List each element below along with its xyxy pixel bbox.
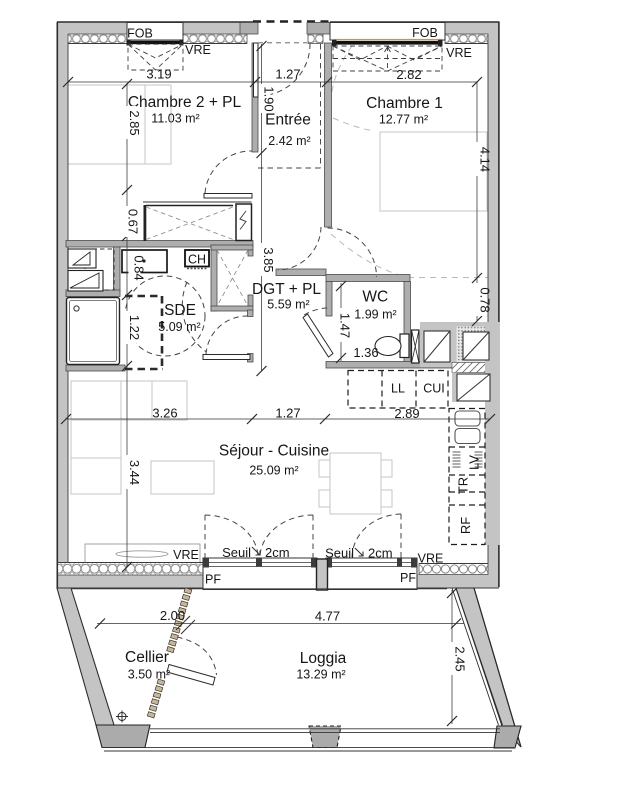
svg-text:3.85: 3.85 [261, 247, 276, 272]
svg-text:Cellier: Cellier [125, 649, 169, 666]
svg-text:2.89: 2.89 [394, 406, 419, 421]
svg-text:4.14: 4.14 [478, 147, 493, 172]
svg-text:FOB: FOB [127, 27, 153, 41]
svg-text:1.90: 1.90 [262, 86, 277, 111]
svg-text:Chambre 1: Chambre 1 [366, 95, 443, 112]
svg-text:Seuil: Seuil [325, 546, 354, 561]
svg-text:Loggia: Loggia [300, 650, 347, 667]
svg-text:Entrée: Entrée [265, 112, 311, 129]
svg-text:SDE: SDE [164, 302, 196, 319]
svg-text:PF: PF [205, 573, 221, 587]
svg-text:3.26: 3.26 [152, 406, 177, 421]
svg-text:PF: PF [400, 571, 416, 585]
svg-text:TR: TR [456, 477, 471, 494]
svg-text:Chambre 2 + PL: Chambre 2 + PL [128, 94, 242, 111]
svg-text:13.29 m²: 13.29 m² [296, 668, 345, 682]
svg-text:VRE: VRE [173, 548, 199, 562]
svg-text:VRE: VRE [185, 43, 211, 57]
svg-text:25.09 m²: 25.09 m² [249, 464, 298, 478]
svg-text:DGT + PL: DGT + PL [252, 281, 321, 298]
svg-text:VRE: VRE [446, 46, 472, 60]
svg-text:2.82: 2.82 [396, 67, 421, 82]
svg-text:1.47: 1.47 [338, 313, 353, 338]
svg-text:CH: CH [188, 253, 206, 267]
svg-text:Séjour - Cuisine: Séjour - Cuisine [219, 443, 329, 460]
svg-text:1.27: 1.27 [275, 406, 300, 421]
svg-text:LV: LV [467, 455, 482, 470]
svg-text:Seuil: Seuil [222, 545, 251, 560]
svg-text:1.99 m²: 1.99 m² [354, 308, 396, 322]
svg-text:0.67: 0.67 [126, 209, 141, 234]
svg-text:11.03 m²: 11.03 m² [151, 112, 199, 126]
svg-text:2cm: 2cm [368, 546, 393, 561]
svg-text:VRE: VRE [418, 552, 444, 566]
svg-text:3.19: 3.19 [146, 67, 171, 82]
svg-text:2.85: 2.85 [127, 110, 142, 135]
svg-text:12.77 m²: 12.77 m² [379, 113, 428, 127]
svg-text:2cm: 2cm [265, 545, 290, 560]
svg-text:FOB: FOB [412, 26, 438, 40]
svg-text:1.36: 1.36 [353, 345, 378, 360]
svg-text:LL: LL [391, 382, 405, 396]
svg-text:5.59 m²: 5.59 m² [267, 298, 309, 312]
svg-text:WC: WC [362, 289, 388, 306]
svg-text:2.00: 2.00 [160, 608, 185, 623]
svg-text:2.42 m²: 2.42 m² [268, 134, 310, 148]
svg-text:4.77: 4.77 [315, 609, 340, 624]
svg-text:0.78: 0.78 [478, 287, 493, 312]
svg-text:5.09 m²: 5.09 m² [158, 320, 200, 334]
svg-text:0.84: 0.84 [132, 255, 147, 280]
svg-text:1.27: 1.27 [275, 67, 300, 82]
svg-text:3.50 m²: 3.50 m² [128, 668, 170, 682]
svg-text:RF: RF [458, 517, 473, 534]
svg-text:CUI: CUI [423, 382, 445, 396]
svg-text:3.44: 3.44 [127, 460, 142, 485]
svg-text:2.45: 2.45 [453, 646, 468, 671]
svg-text:1.22: 1.22 [127, 315, 142, 340]
